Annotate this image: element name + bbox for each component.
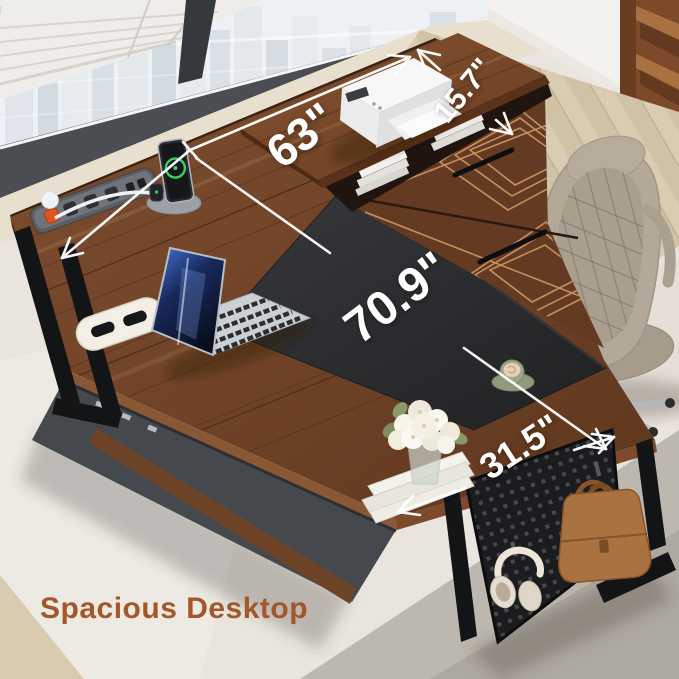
scene <box>0 0 679 679</box>
caption-text: Spacious Desktop <box>40 592 308 626</box>
product-image: 63" 15.7" 70.9" 31.5" Spacious Desktop <box>0 0 679 679</box>
briefcase-clasp <box>599 539 609 553</box>
